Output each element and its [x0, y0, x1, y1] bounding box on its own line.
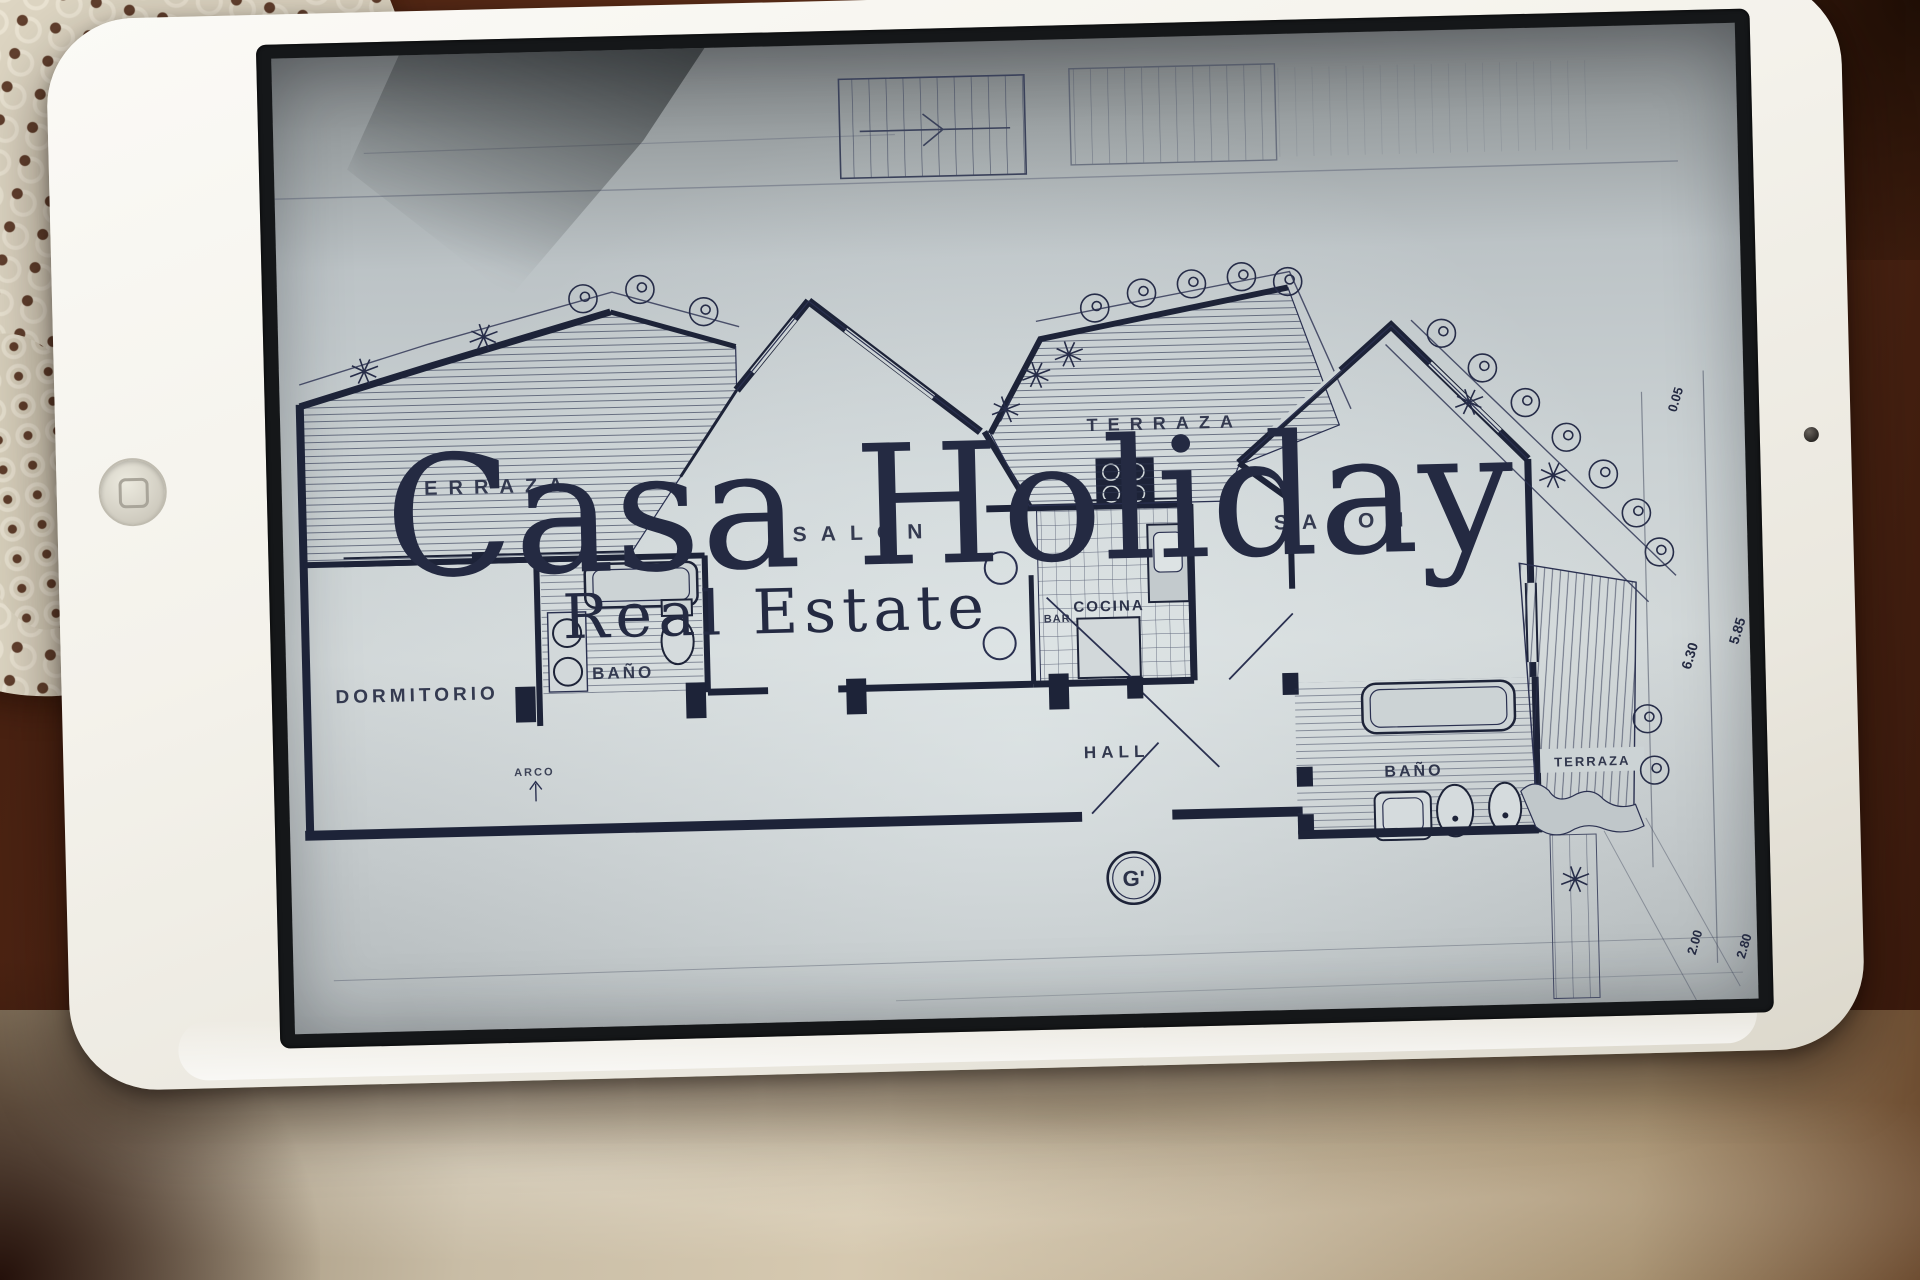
- terraza-right-label: TERRAZA: [1554, 753, 1631, 770]
- hall-area: HALL: [1082, 673, 1301, 814]
- bano-left-label: BAÑO: [592, 662, 655, 683]
- photo-scene: DORMITORIO BAÑO SALON: [0, 0, 1920, 1280]
- dormitorio-label: DORMITORIO: [335, 683, 499, 708]
- tablet-screen[interactable]: DORMITORIO BAÑO SALON: [271, 23, 1758, 1034]
- arco-label-group: ARCO: [514, 766, 555, 802]
- bano-right-room: BAÑO: [1294, 677, 1538, 842]
- screen-frame: DORMITORIO BAÑO SALON: [256, 8, 1774, 1048]
- cocina-label: COCINA: [1073, 597, 1145, 616]
- home-button[interactable]: [98, 457, 168, 527]
- camera-icon: [1804, 427, 1819, 442]
- tablet-device: DORMITORIO BAÑO SALON: [45, 0, 1866, 1092]
- watermark-line2: Real Estate: [562, 571, 991, 653]
- hall-label: HALL: [1084, 742, 1150, 762]
- dormitorio-room: DORMITORIO: [335, 683, 499, 708]
- dim-005: 0.05: [1665, 385, 1687, 413]
- arco-label: ARCO: [514, 766, 555, 779]
- dim-585: 5.85: [1725, 615, 1748, 646]
- dim-280: 2.80: [1733, 932, 1755, 960]
- section-marker-label: G': [1122, 866, 1145, 891]
- dim-200: 2.00: [1684, 928, 1706, 956]
- counter: [1077, 617, 1141, 678]
- dim-630: 6.30: [1678, 640, 1701, 671]
- section-marker: G': [1107, 852, 1160, 905]
